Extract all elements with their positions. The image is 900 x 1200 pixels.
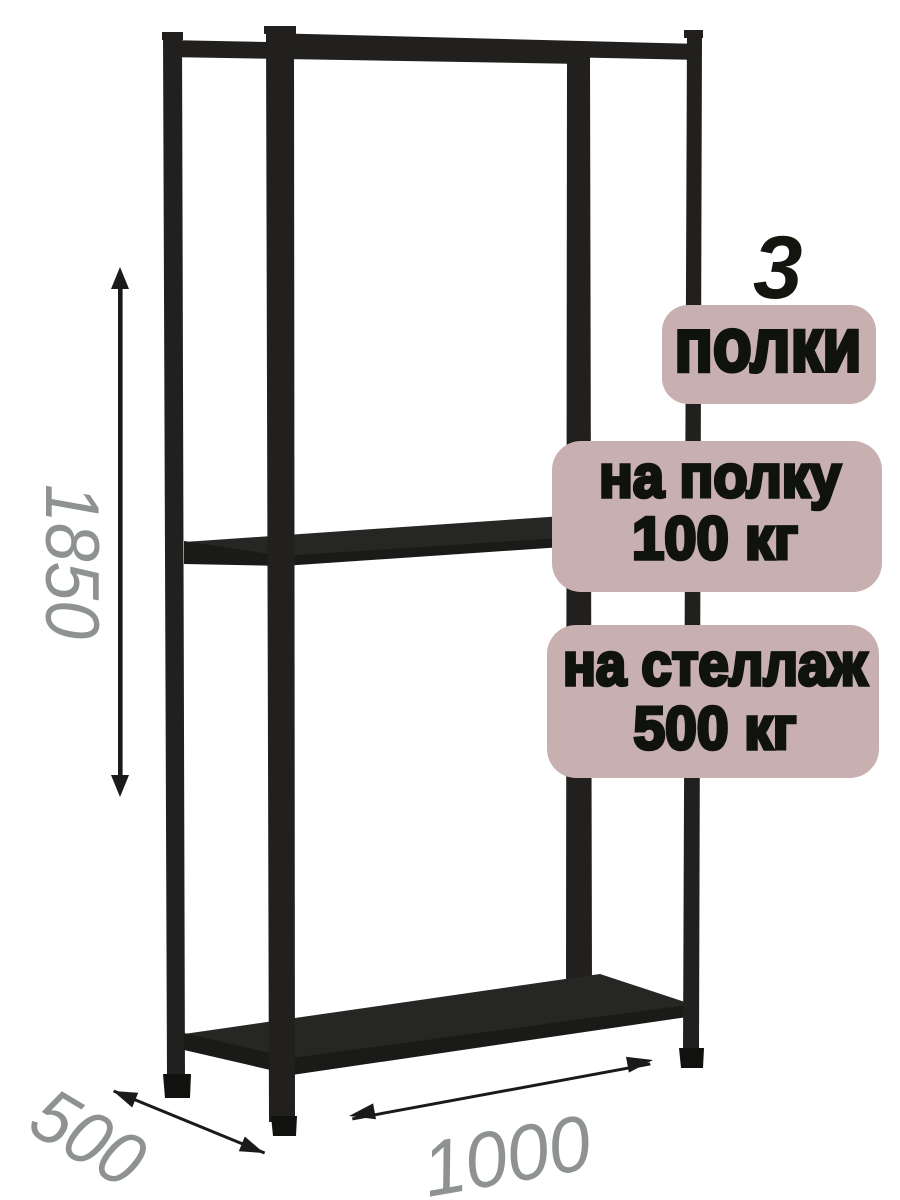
svg-text:500 кг: 500 кг	[634, 695, 797, 762]
svg-text:полки: полки	[675, 303, 862, 388]
svg-text:на стеллаж: на стеллаж	[563, 631, 868, 698]
svg-text:3: 3	[753, 217, 803, 317]
svg-text:1850: 1850	[29, 484, 114, 639]
svg-text:100 кг: 100 кг	[632, 505, 798, 572]
svg-text:на полку: на полку	[599, 443, 842, 510]
